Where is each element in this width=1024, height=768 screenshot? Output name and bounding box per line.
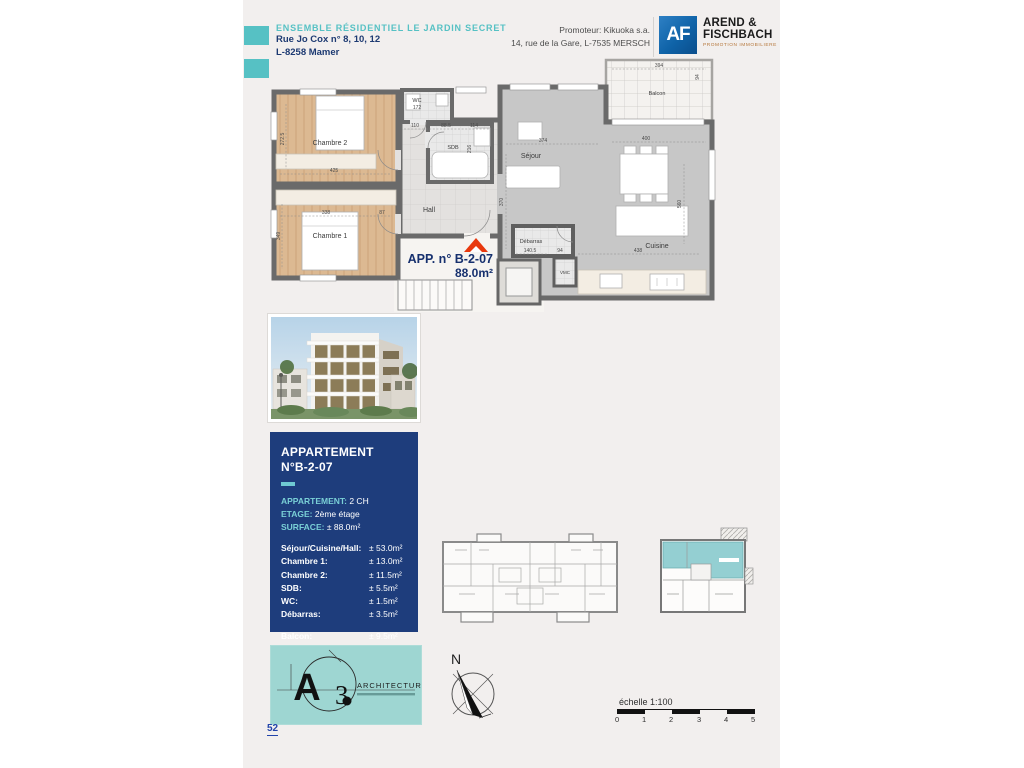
info-field-floor: ETAGE: 2ème étage xyxy=(281,508,407,521)
architect-logo: A 3 ARCHITECTURE xyxy=(270,645,422,725)
architect-initial-3: 3 xyxy=(335,680,349,710)
dim-sejour-width: 374 xyxy=(539,138,548,144)
header-divider xyxy=(653,17,654,57)
architect-title: ARCHITECTURE xyxy=(357,681,422,690)
project-title: ENSEMBLE RÉSIDENTIEL LE JARDIN SECRET xyxy=(276,22,506,34)
info-field-surface: SURFACE: ± 88.0m² xyxy=(281,521,407,534)
scale-ticks: 0 1 2 3 4 5 xyxy=(617,715,757,725)
label-vmc: VMC xyxy=(560,270,571,275)
dim-sejour-height: 370 xyxy=(499,198,505,207)
developer-name-line2: FISCHBACH xyxy=(703,30,777,42)
label-bedroom1: Chambre 1 xyxy=(313,233,348,240)
info-teal-dash xyxy=(281,482,295,486)
dim-chambre1-height: 349 xyxy=(276,232,282,241)
room-row: Séjour/Cuisine/Hall:± 53.0m² xyxy=(281,542,407,555)
dim-chambre2-height: 272.5 xyxy=(280,133,286,146)
label-bedroom2: Chambre 2 xyxy=(313,140,348,147)
scale-label: échelle 1:100 xyxy=(619,697,757,707)
label-kitchen: Cuisine xyxy=(645,243,668,250)
apartment-area-label: 88.0m² xyxy=(455,266,493,280)
apartment-key-plan xyxy=(653,524,755,626)
label-wc: WC xyxy=(412,98,421,104)
compass-rose: N xyxy=(443,648,503,730)
developer-name-line1: AREND & xyxy=(703,18,777,30)
info-room-list: Séjour/Cuisine/Hall:± 53.0m² Chambre 1:±… xyxy=(281,542,407,643)
developer-subtitle: PROMOTION IMMOBILIERE xyxy=(703,44,777,49)
dim-dining-width: 400 xyxy=(642,136,651,142)
room-row: Chambre 2:± 11.5m² xyxy=(281,569,407,582)
info-title-line2: N°B-2-07 xyxy=(281,460,407,475)
developer-monogram-icon: AF xyxy=(659,16,697,54)
room-row: Débarras:± 3.5m² xyxy=(281,608,407,621)
dim-wc-below2: 88.5 xyxy=(441,123,451,129)
label-storage: Débarras xyxy=(520,239,543,245)
developer-logo: AF AREND & FISCHBACH PROMOTION IMMOBILIE… xyxy=(659,16,777,54)
document-page: ENSEMBLE RÉSIDENTIEL LE JARDIN SECRET Ru… xyxy=(243,0,780,768)
page-number: 52 xyxy=(267,723,278,736)
architect-initial-a: A xyxy=(293,667,320,709)
room-row: SDB:± 5.5m² xyxy=(281,582,407,595)
dim-cuisine-height: 560 xyxy=(677,200,683,209)
compass-north-label: N xyxy=(451,651,461,667)
dim-wc-width: 172 xyxy=(413,105,422,111)
floor-overview-plan xyxy=(435,528,625,630)
scale-bar xyxy=(617,709,757,714)
dim-wc-below1: 110 xyxy=(411,123,419,129)
project-address-line1: Rue Jo Cox n° 8, 10, 12 xyxy=(276,34,506,47)
header-teal-square-1 xyxy=(244,26,269,45)
apartment-number-label: APP. n° B-2-07 xyxy=(408,252,493,266)
dim-debarras-width: 140.5 xyxy=(524,248,537,254)
brochure-page-screenshot: ENSEMBLE RÉSIDENTIEL LE JARDIN SECRET Ru… xyxy=(0,0,1024,768)
dim-balcon-width: 394 xyxy=(655,63,664,69)
dim-debarras-height: 94 xyxy=(557,248,563,254)
dim-wc-below3: 114 xyxy=(470,123,478,129)
label-living: Séjour xyxy=(521,153,542,160)
balcony-row: Balcon:± 9.5m² xyxy=(281,630,407,643)
promoter-line2: 14, rue de la Gare, L-7535 MERSCH xyxy=(511,37,650,50)
architect-logo-dot xyxy=(343,697,352,706)
room-row: Chambre 1:± 13.0m² xyxy=(281,555,407,568)
dim-chambre1-width: 338 xyxy=(322,210,331,216)
architect-subtitle-line xyxy=(357,693,415,695)
developer-name-block: AREND & FISCHBACH PROMOTION IMMOBILIERE xyxy=(703,16,777,49)
promoter-line1: Promoteur: Kikuoka s.a. xyxy=(511,24,650,37)
scale-bar-block: échelle 1:100 0 1 2 3 4 5 xyxy=(617,697,757,725)
dim-sdb-height: 216 xyxy=(467,145,473,154)
building-render-photo xyxy=(268,314,420,422)
dim-balcon-height: 94 xyxy=(695,74,701,80)
dim-cuisine-width: 438 xyxy=(634,248,643,254)
elevator xyxy=(498,260,540,304)
label-bathroom: SDB xyxy=(447,145,459,151)
info-field-type: APPARTEMENT: 2 CH xyxy=(281,495,407,508)
apartment-floor-plan: Chambre 2 Chambre 1 WC SDB Hall Séjour C… xyxy=(260,54,740,312)
apartment-info-box: APPARTEMENT N°B-2-07 APPARTEMENT: 2 CH E… xyxy=(270,432,418,632)
room-row: WC:± 1.5m² xyxy=(281,595,407,608)
label-hall: Hall xyxy=(423,207,436,214)
info-title-line1: APPARTEMENT xyxy=(281,445,407,460)
staircase xyxy=(398,280,472,310)
promoter-block: Promoteur: Kikuoka s.a. 14, rue de la Ga… xyxy=(511,24,650,50)
label-balcony: Balcon xyxy=(649,91,666,97)
dim-hall-gap: 87 xyxy=(379,210,385,216)
dim-chambre2-width: 425 xyxy=(330,168,339,174)
